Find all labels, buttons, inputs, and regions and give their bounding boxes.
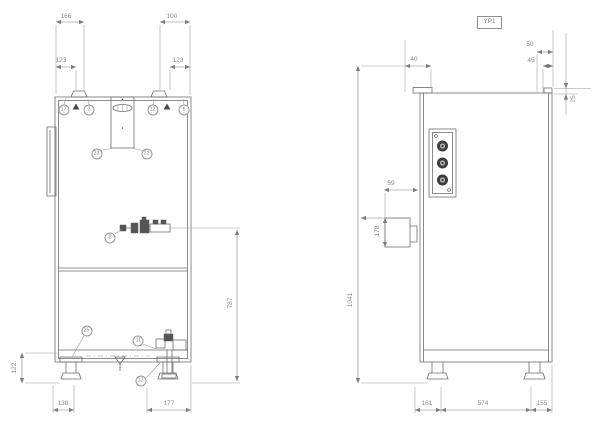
balloon-drain-lower: 13: [136, 376, 147, 387]
balloon-mid-valve: 8: [105, 233, 116, 244]
balloon-top-left-a: 17: [59, 105, 70, 116]
drawing-linework: [0, 0, 600, 429]
side-view-dimensions: [358, 30, 591, 413]
dim-front-top-left-outer: 166: [61, 14, 72, 21]
dim-side-front-top-outer: 50: [526, 42, 533, 49]
balloon-base-left: 25: [82, 326, 93, 337]
dim-side-bottom-right: 155: [537, 401, 548, 408]
balloon-plate-right: 21: [142, 149, 153, 160]
dim-front-top-left-inner: 123: [56, 58, 67, 65]
dim-side-box-height: 178: [375, 226, 382, 237]
dim-side-overall-height: 1041: [348, 293, 355, 307]
balloon-top-left-b: 3: [84, 105, 95, 116]
front-view-mid-valve-assembly: [120, 217, 240, 233]
dim-front-bottom-right: 177: [164, 401, 175, 408]
side-view-label-box: YP1: [477, 16, 502, 29]
dim-side-roof-step: 40: [410, 57, 417, 64]
side-view-cabinet-outline: [385, 88, 552, 363]
dim-side-front-top-inner: 45: [527, 58, 534, 65]
front-view-feet-and-drain: [60, 330, 186, 379]
dim-side-bottom-middle: 574: [478, 401, 489, 408]
dim-front-top-right-inner: 123: [173, 58, 184, 65]
dim-front-top-right-outer: 100: [167, 14, 178, 21]
balloon-plate-left: 23: [92, 149, 103, 160]
side-view-connector-panel: [429, 129, 456, 197]
dim-side-bottom-left: 161: [422, 401, 433, 408]
side-view-label: YP1: [483, 19, 495, 26]
balloon-top-right-a: 12: [148, 105, 159, 116]
dim-side-front-offset: 25: [571, 95, 578, 102]
dim-front-valve-to-floor: 787: [228, 298, 235, 309]
dim-side-box-width: 59: [387, 181, 394, 188]
side-view-feet: [427, 362, 545, 379]
balloon-top-right-b: 6: [179, 105, 190, 116]
dim-front-bottom-left: 138: [58, 401, 69, 408]
technical-drawing-sheet: 166 123 100 123 787 122 138 177 40 50 45…: [0, 0, 600, 429]
dim-front-base-height: 122: [12, 363, 19, 374]
front-view-cabinet-outline: [47, 91, 191, 362]
balloon-drain-upper: 11: [133, 336, 144, 347]
